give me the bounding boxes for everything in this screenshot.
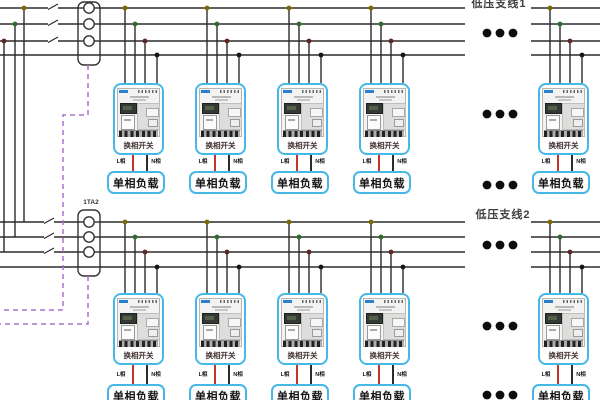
phase-switch-label: 换相开关: [279, 140, 326, 151]
phase-switch-device-photo: [363, 88, 406, 137]
device-terminal-marks: [563, 300, 583, 303]
phase-switch-device-box: 换相开关: [538, 83, 589, 155]
wiring-diagram-canvas: 换相开关 L相 N相 单相负载: [0, 0, 600, 400]
device-button: [230, 329, 240, 337]
device-model-text: [379, 309, 392, 311]
device-model-text: [212, 96, 231, 98]
tap-junction-dot: [215, 235, 220, 240]
device-terminal-marks: [302, 90, 322, 93]
device-lcd-screen: [123, 106, 132, 110]
device-terminal-strip: [283, 130, 322, 137]
neutral-phase-label: N相: [229, 157, 247, 165]
phase-switch-unit: 换相开关 L相 N相 单相负载: [532, 83, 596, 199]
tap-junction-dot: [369, 220, 374, 225]
device-button: [148, 329, 158, 337]
device-nameplate: [367, 115, 381, 130]
device-terminal-marks: [302, 300, 322, 303]
device-model-text: [130, 96, 149, 98]
tap-junction-dot: [568, 250, 573, 255]
ct1-signal-dashed-wire: [0, 65, 88, 310]
single-phase-load-label: 单相负载: [113, 388, 159, 400]
device-nameplate-text: [288, 329, 295, 331]
tap-junction-dot: [123, 220, 128, 225]
device-model-text: [130, 306, 149, 308]
phase-switch-device-photo: [117, 88, 160, 137]
device-right-panel: [383, 103, 406, 130]
device-right-panel: [562, 313, 585, 340]
neutral-phase-label: N相: [572, 370, 590, 378]
live-output-wire: [214, 365, 216, 384]
phase-switch-device-photo: [542, 298, 585, 347]
tap-junction-dot: [319, 265, 324, 270]
device-terminal-strip: [119, 130, 158, 137]
device-model-text: [297, 99, 310, 101]
device-right-panel: [137, 313, 160, 340]
tap-junction-dot: [205, 6, 210, 11]
device-nameplate: [285, 325, 299, 340]
single-phase-load-box: 单相负载: [189, 171, 247, 194]
continuation-dots: [483, 241, 492, 250]
tap-junction-dot: [297, 22, 302, 27]
continuation-dots: [509, 181, 518, 190]
device-lcd-display: [120, 103, 137, 114]
device-brand-logo: [201, 90, 210, 93]
tap-junction-dot: [143, 250, 148, 255]
tap-junction-dot: [580, 53, 585, 58]
single-phase-load-label: 单相负载: [359, 175, 405, 191]
tap-junction-dot: [297, 235, 302, 240]
phase-switch-unit: 换相开关 L相 N相 单相负载: [353, 83, 417, 199]
continuation-dots: [509, 241, 518, 250]
continuation-dots: [509, 110, 518, 119]
phase-switch-unit: 换相开关 L相 N相 单相负载: [189, 83, 253, 199]
single-phase-load-label: 单相负载: [277, 175, 323, 191]
phase-switch-unit: 换相开关 L相 N相 单相负载: [189, 293, 253, 400]
tap-junction-dot: [558, 235, 563, 240]
phase-switch-label: 换相开关: [197, 140, 244, 151]
live-phase-label: L相: [194, 370, 212, 378]
phase-switch-unit: 换相开关 L相 N相 单相负载: [271, 293, 335, 400]
continuation-dots: [496, 391, 505, 400]
neutral-phase-label: N相: [311, 370, 329, 378]
tap-junction-dot: [133, 22, 138, 27]
current-transformer-1TA2-label: 1TA2: [78, 199, 104, 206]
phase-switch-unit: 换相开关 L相 N相 单相负载: [532, 293, 596, 400]
neutral-phase-label: N相: [311, 157, 329, 165]
phase-switch-device-photo: [542, 88, 585, 137]
device-model-text: [376, 96, 395, 98]
device-lcd-display: [366, 313, 383, 324]
device-model-text: [133, 309, 146, 311]
device-terminal-strip: [119, 340, 158, 347]
device-button: [230, 119, 240, 127]
device-label-sticker: [571, 108, 584, 117]
tap-junction-dot: [369, 6, 374, 11]
device-model-text: [133, 99, 146, 101]
phase-switch-label: 换相开关: [361, 140, 408, 151]
tap-junction-dot: [568, 39, 573, 44]
neutral-phase-label: N相: [393, 370, 411, 378]
device-nameplate: [121, 325, 135, 340]
single-phase-load-box: 单相负载: [189, 384, 247, 400]
disconnect-switch-icon: [48, 20, 58, 26]
device-model-text: [215, 99, 228, 101]
device-button: [148, 119, 158, 127]
device-brand-logo: [544, 90, 553, 93]
single-phase-load-label: 单相负载: [195, 175, 241, 191]
ct2-signal-dashed-wire: [0, 276, 88, 324]
phase-switch-device-box: 换相开关: [195, 83, 246, 155]
single-phase-load-box: 单相负载: [271, 171, 329, 194]
device-terminal-strip: [283, 340, 322, 347]
device-nameplate-text: [206, 119, 213, 121]
device-model-text: [558, 99, 571, 101]
device-terminal-marks: [138, 300, 158, 303]
phase-switch-label: 换相开关: [361, 350, 408, 361]
phase-switch-label: 换相开关: [197, 350, 244, 361]
device-nameplate: [121, 115, 135, 130]
single-phase-load-label: 单相负载: [195, 388, 241, 400]
disconnect-switch-icon: [48, 37, 58, 43]
phase-switch-device-photo: [199, 88, 242, 137]
device-lcd-display: [202, 313, 219, 324]
phase-switch-device-box: 换相开关: [277, 293, 328, 365]
device-brand-logo: [201, 300, 210, 303]
phase-switch-label: 换相开关: [115, 350, 162, 361]
neutral-phase-label: N相: [147, 157, 165, 165]
live-phase-label: L相: [112, 157, 130, 165]
single-phase-load-box: 单相负载: [107, 384, 165, 400]
device-lcd-display: [120, 313, 137, 324]
phase-switch-unit: 换相开关 L相 N相 单相负载: [107, 83, 171, 199]
continuation-dots: [483, 181, 492, 190]
neutral-phase-label: N相: [572, 157, 590, 165]
continuation-dots: [483, 322, 492, 331]
device-nameplate-text: [549, 119, 556, 121]
device-terminal-marks: [220, 300, 240, 303]
phase-switch-device-photo: [281, 88, 324, 137]
disconnect-switch-icon: [48, 4, 58, 10]
tap-junction-dot: [155, 265, 160, 270]
single-phase-load-box: 单相负载: [532, 171, 590, 194]
phase-switch-device-box: 换相开关: [277, 83, 328, 155]
tap-junction-dot: [133, 235, 138, 240]
single-phase-load-box: 单相负载: [107, 171, 165, 194]
disconnect-switch-icon: [44, 218, 54, 224]
device-right-panel: [301, 313, 324, 340]
device-right-panel: [219, 103, 242, 130]
tap-junction-dot: [287, 220, 292, 225]
live-phase-label: L相: [358, 370, 376, 378]
tap-junction-dot: [319, 53, 324, 58]
tap-junction-dot: [307, 250, 312, 255]
device-label-sticker: [310, 108, 323, 117]
phase-switch-device-box: 换相开关: [113, 83, 164, 155]
phase-switch-label: 换相开关: [279, 350, 326, 361]
tap-junction-dot: [558, 22, 563, 27]
device-label-sticker: [392, 318, 405, 327]
device-lcd-screen: [287, 106, 296, 110]
continuation-dots: [496, 322, 505, 331]
device-terminal-marks: [384, 90, 404, 93]
device-button: [312, 119, 322, 127]
device-brand-logo: [283, 300, 292, 303]
tap-junction-dot: [379, 235, 384, 240]
live-phase-label: L相: [276, 370, 294, 378]
device-terminal-strip: [544, 340, 583, 347]
device-right-panel: [301, 103, 324, 130]
single-phase-load-box: 单相负载: [271, 384, 329, 400]
continuation-dots: [483, 391, 492, 400]
device-terminal-marks: [138, 90, 158, 93]
tap-junction-dot: [123, 6, 128, 11]
phase-switch-device-box: 换相开关: [113, 293, 164, 365]
phase-switch-device-photo: [363, 298, 406, 347]
tap-junction-dot: [389, 39, 394, 44]
tap-junction-dot: [307, 39, 312, 44]
neutral-phase-label: N相: [147, 370, 165, 378]
ct-coil-icon: [84, 247, 94, 257]
device-nameplate: [546, 325, 560, 340]
tap-junction-dot: [401, 265, 406, 270]
single-phase-load-box: 单相负载: [532, 384, 590, 400]
device-lcd-display: [284, 313, 301, 324]
tap-junction-dot: [580, 265, 585, 270]
device-button: [394, 119, 404, 127]
tap-junction-dot: [389, 250, 394, 255]
device-nameplate-text: [288, 119, 295, 121]
phase-switch-device-box: 换相开关: [195, 293, 246, 365]
tap-junction-dot: [548, 6, 553, 11]
device-model-text: [555, 306, 574, 308]
device-lcd-display: [545, 313, 562, 324]
device-terminal-strip: [544, 130, 583, 137]
live-phase-label: L相: [537, 157, 555, 165]
device-model-text: [294, 306, 313, 308]
tap-junction-dot: [225, 39, 230, 44]
device-label-sticker: [146, 108, 159, 117]
disconnect-switch-icon: [44, 248, 54, 254]
disconnect-switch-icon: [44, 233, 54, 239]
device-terminal-marks: [563, 90, 583, 93]
tap-junction-dot: [205, 220, 210, 225]
device-lcd-screen: [548, 316, 557, 320]
live-output-wire: [557, 365, 559, 384]
device-right-panel: [137, 103, 160, 130]
feeder-junction-dot: [22, 6, 27, 11]
single-phase-load-label: 单相负载: [538, 175, 584, 191]
live-phase-label: L相: [537, 370, 555, 378]
device-lcd-screen: [369, 106, 378, 110]
single-phase-load-label: 单相负载: [359, 388, 405, 400]
device-brand-logo: [544, 300, 553, 303]
phase-switch-label: 换相开关: [540, 350, 587, 361]
device-lcd-display: [202, 103, 219, 114]
continuation-dots: [496, 29, 505, 38]
single-phase-load-box: 单相负载: [353, 384, 411, 400]
continuation-dots: [496, 241, 505, 250]
tap-junction-dot: [155, 53, 160, 58]
ct-coil-icon: [84, 19, 94, 29]
device-nameplate-text: [549, 329, 556, 331]
live-output-wire: [214, 155, 216, 171]
live-output-wire: [378, 365, 380, 384]
tap-junction-dot: [215, 22, 220, 27]
device-terminal-strip: [201, 340, 240, 347]
device-nameplate: [285, 115, 299, 130]
phase-switch-device-box: 换相开关: [538, 293, 589, 365]
device-nameplate: [367, 325, 381, 340]
device-nameplate-text: [206, 329, 213, 331]
device-brand-logo: [119, 300, 128, 303]
device-nameplate-text: [124, 119, 131, 121]
tap-junction-dot: [143, 39, 148, 44]
tap-junction-dot: [401, 53, 406, 58]
device-terminal-marks: [220, 90, 240, 93]
phase-switch-label: 换相开关: [115, 140, 162, 151]
device-terminal-marks: [384, 300, 404, 303]
phase-switch-device-photo: [199, 298, 242, 347]
tap-junction-dot: [287, 6, 292, 11]
continuation-dots: [496, 110, 505, 119]
single-phase-load-label: 单相负载: [113, 175, 159, 191]
ct-coil-icon: [84, 3, 94, 13]
continuation-dots: [509, 29, 518, 38]
device-model-text: [555, 96, 574, 98]
neutral-phase-label: N相: [229, 370, 247, 378]
device-button: [394, 329, 404, 337]
continuation-dots: [483, 110, 492, 119]
device-nameplate: [203, 115, 217, 130]
live-phase-label: L相: [358, 157, 376, 165]
tap-junction-dot: [237, 265, 242, 270]
tap-junction-dot: [237, 53, 242, 58]
phase-switch-device-photo: [281, 298, 324, 347]
device-model-text: [294, 96, 313, 98]
phase-switch-unit: 换相开关 L相 N相 单相负载: [271, 83, 335, 199]
device-right-panel: [383, 313, 406, 340]
live-phase-label: L相: [194, 157, 212, 165]
tap-junction-dot: [548, 220, 553, 225]
phase-switch-device-photo: [117, 298, 160, 347]
device-label-sticker: [146, 318, 159, 327]
device-terminal-strip: [201, 130, 240, 137]
device-brand-logo: [365, 90, 374, 93]
device-right-panel: [219, 313, 242, 340]
device-button: [573, 119, 583, 127]
ct-coil-icon: [84, 36, 94, 46]
branch-line-1-label: 低压支线1: [454, 0, 544, 11]
device-lcd-screen: [123, 316, 132, 320]
device-lcd-screen: [369, 316, 378, 320]
device-nameplate-text: [370, 329, 377, 331]
single-phase-load-label: 单相负载: [277, 388, 323, 400]
live-output-wire: [296, 365, 298, 384]
device-label-sticker: [571, 318, 584, 327]
device-nameplate: [203, 325, 217, 340]
device-label-sticker: [228, 108, 241, 117]
tap-junction-dot: [379, 22, 384, 27]
feeder-junction-dot: [13, 22, 18, 27]
device-model-text: [215, 309, 228, 311]
single-phase-load-label: 单相负载: [538, 388, 584, 400]
live-output-wire: [557, 155, 559, 171]
device-terminal-strip: [365, 340, 404, 347]
device-lcd-display: [284, 103, 301, 114]
live-output-wire: [296, 155, 298, 171]
device-label-sticker: [310, 318, 323, 327]
device-button: [573, 329, 583, 337]
device-lcd-screen: [205, 106, 214, 110]
feeder-junction-dot: [2, 39, 7, 44]
device-model-text: [558, 309, 571, 311]
device-nameplate-text: [370, 119, 377, 121]
device-brand-logo: [365, 300, 374, 303]
device-right-panel: [562, 103, 585, 130]
live-output-wire: [132, 365, 134, 384]
device-lcd-display: [366, 103, 383, 114]
device-nameplate-text: [124, 329, 131, 331]
device-model-text: [376, 306, 395, 308]
continuation-dots: [509, 322, 518, 331]
single-phase-load-box: 单相负载: [353, 171, 411, 194]
phase-switch-device-box: 换相开关: [359, 83, 410, 155]
continuation-dots: [483, 29, 492, 38]
ct-coil-icon: [84, 217, 94, 227]
device-lcd-screen: [205, 316, 214, 320]
neutral-phase-label: N相: [393, 157, 411, 165]
device-nameplate: [546, 115, 560, 130]
device-label-sticker: [392, 108, 405, 117]
live-phase-label: L相: [276, 157, 294, 165]
live-output-wire: [132, 155, 134, 171]
device-model-text: [297, 309, 310, 311]
device-terminal-strip: [365, 130, 404, 137]
device-lcd-display: [545, 103, 562, 114]
device-lcd-screen: [548, 106, 557, 110]
device-button: [312, 329, 322, 337]
device-lcd-screen: [287, 316, 296, 320]
device-brand-logo: [119, 90, 128, 93]
continuation-dots: [496, 181, 505, 190]
continuation-dots: [509, 391, 518, 400]
device-model-text: [379, 99, 392, 101]
branch-line-2-label: 低压支线2: [458, 206, 548, 222]
live-output-wire: [378, 155, 380, 171]
device-brand-logo: [283, 90, 292, 93]
device-label-sticker: [228, 318, 241, 327]
device-model-text: [212, 306, 231, 308]
phase-switch-unit: 换相开关 L相 N相 单相负载: [353, 293, 417, 400]
ct-coil-icon: [84, 232, 94, 242]
phase-switch-label: 换相开关: [540, 140, 587, 151]
phase-switch-unit: 换相开关 L相 N相 单相负载: [107, 293, 171, 400]
live-phase-label: L相: [112, 370, 130, 378]
tap-junction-dot: [225, 250, 230, 255]
phase-switch-device-box: 换相开关: [359, 293, 410, 365]
